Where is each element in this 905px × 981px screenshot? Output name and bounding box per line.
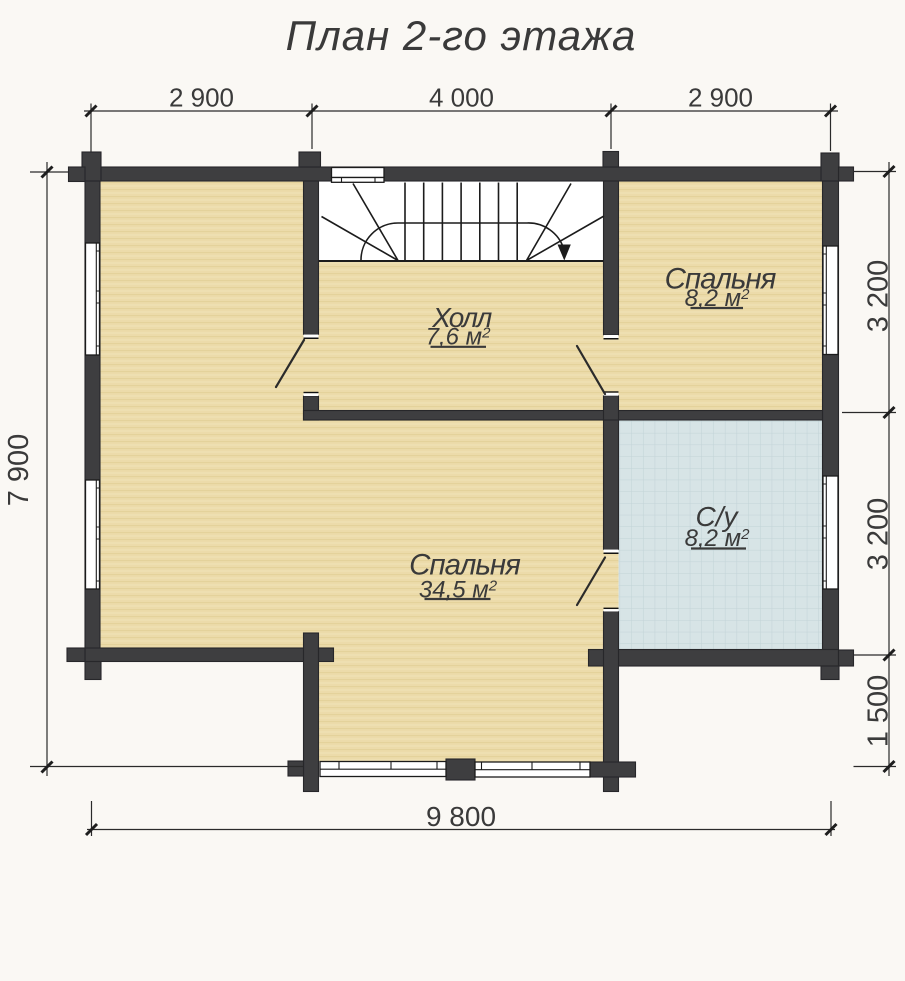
svg-text:2 900: 2 900	[169, 83, 234, 113]
svg-text:3 200: 3 200	[863, 498, 895, 571]
svg-text:4 000: 4 000	[429, 83, 494, 113]
svg-text:7 900: 7 900	[3, 434, 35, 507]
svg-text:2 900: 2 900	[688, 83, 753, 113]
svg-text:3 200: 3 200	[863, 260, 895, 333]
svg-text:План 2-го этажа: План 2-го этажа	[286, 12, 637, 59]
svg-text:9 800: 9 800	[426, 801, 496, 832]
svg-text:1 500: 1 500	[863, 675, 895, 748]
